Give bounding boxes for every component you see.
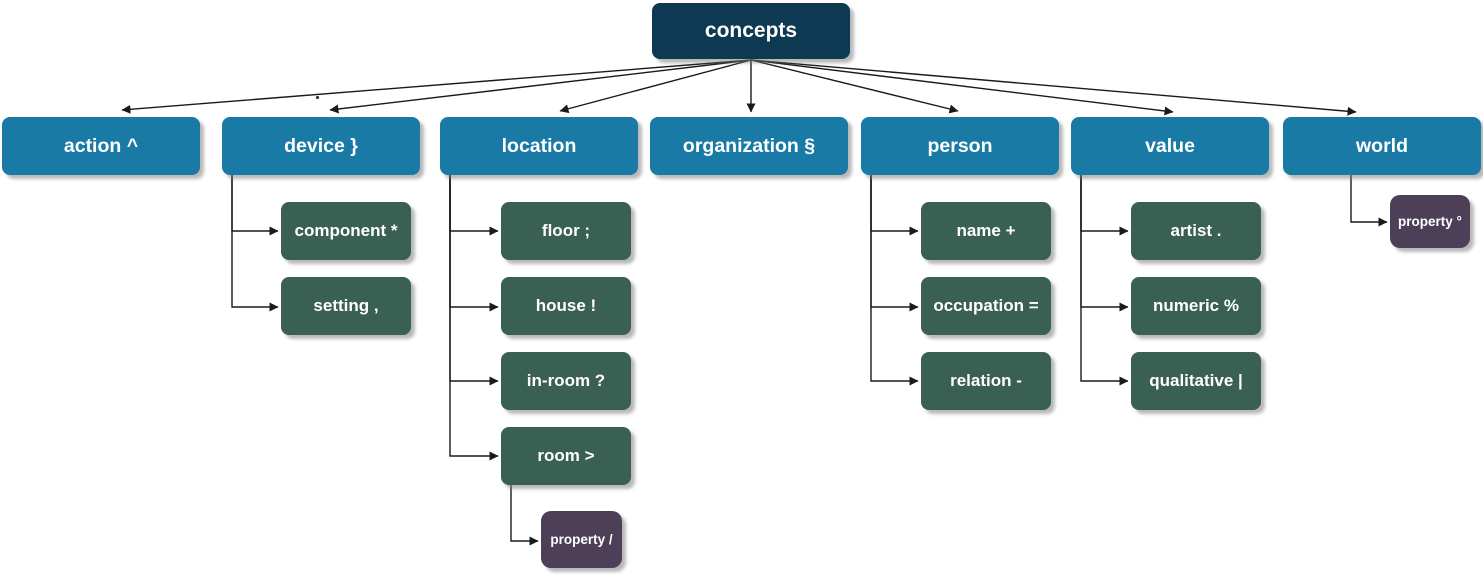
node-person[interactable]: person	[861, 117, 1059, 175]
edge-concepts-person	[751, 60, 958, 111]
node-occupation[interactable]: occupation =	[921, 277, 1051, 335]
edge-location-house	[450, 175, 498, 307]
node-numeric[interactable]: numeric %	[1131, 277, 1261, 335]
node-location-label: location	[502, 135, 577, 158]
edge-label-dot	[316, 96, 319, 99]
node-room-property-label: property /	[550, 532, 612, 547]
node-room-property[interactable]: property /	[541, 511, 622, 568]
edge-concepts-device	[330, 60, 751, 110]
edge-concepts-world	[751, 60, 1356, 112]
node-qualitative-label: qualitative |	[1149, 371, 1243, 391]
edge-room-property	[511, 485, 538, 541]
node-relation-label: relation -	[950, 371, 1022, 391]
edge-person-relation	[871, 175, 918, 381]
edge-person-occupation	[871, 175, 918, 307]
node-device[interactable]: device }	[222, 117, 420, 175]
node-concepts-label: concepts	[705, 19, 797, 43]
node-world[interactable]: world	[1283, 117, 1481, 175]
node-organization-label: organization §	[683, 135, 815, 158]
node-occupation-label: occupation =	[933, 296, 1038, 316]
node-qualitative[interactable]: qualitative |	[1131, 352, 1261, 410]
concept-hierarchy-diagram: concepts action ^ device } location orga…	[0, 0, 1483, 574]
node-component[interactable]: component *	[281, 202, 411, 260]
node-artist[interactable]: artist .	[1131, 202, 1261, 260]
node-device-label: device }	[284, 135, 358, 158]
edge-location-room	[450, 175, 498, 456]
node-world-property[interactable]: property °	[1390, 195, 1470, 248]
node-in-room[interactable]: in-room ?	[501, 352, 631, 410]
node-value-label: value	[1145, 135, 1195, 158]
node-house[interactable]: house !	[501, 277, 631, 335]
node-location[interactable]: location	[440, 117, 638, 175]
node-house-label: house !	[536, 296, 596, 316]
node-name-label: name +	[956, 221, 1015, 241]
node-world-property-label: property °	[1398, 214, 1462, 229]
node-relation[interactable]: relation -	[921, 352, 1051, 410]
edge-location-floor	[450, 175, 498, 231]
node-person-label: person	[927, 135, 992, 158]
edge-value-artist	[1081, 175, 1128, 231]
edge-device-component	[232, 175, 278, 231]
node-component-label: component *	[295, 221, 398, 241]
node-setting-label: setting ,	[313, 296, 378, 316]
node-concepts[interactable]: concepts	[652, 3, 850, 59]
edge-value-qualitative	[1081, 175, 1128, 381]
node-in-room-label: in-room ?	[527, 371, 605, 391]
node-artist-label: artist .	[1170, 221, 1221, 241]
edge-concepts-location	[560, 60, 751, 111]
node-room-label: room >	[537, 446, 594, 466]
edge-concepts-action	[122, 60, 751, 110]
node-world-label: world	[1356, 135, 1408, 158]
node-action[interactable]: action ^	[2, 117, 200, 175]
node-room[interactable]: room >	[501, 427, 631, 485]
edge-value-numeric	[1081, 175, 1128, 307]
node-numeric-label: numeric %	[1153, 296, 1239, 316]
node-floor[interactable]: floor ;	[501, 202, 631, 260]
node-organization[interactable]: organization §	[650, 117, 848, 175]
edge-person-name	[871, 175, 918, 231]
node-setting[interactable]: setting ,	[281, 277, 411, 335]
edge-concepts-value	[751, 60, 1173, 112]
edge-device-setting	[232, 175, 278, 307]
edge-location-inroom	[450, 175, 498, 381]
node-action-label: action ^	[64, 135, 138, 158]
edge-world-property	[1351, 175, 1387, 222]
node-name[interactable]: name +	[921, 202, 1051, 260]
node-value[interactable]: value	[1071, 117, 1269, 175]
node-floor-label: floor ;	[542, 221, 590, 241]
